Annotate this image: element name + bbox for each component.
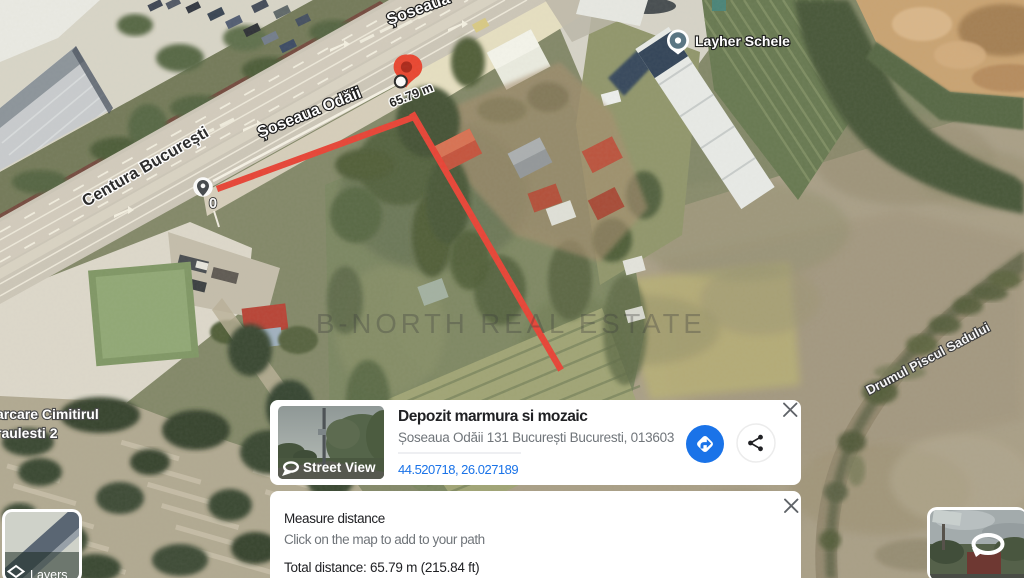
svg-text:Șoseaua Odăii 131 București Bu: Șoseaua Odăii 131 București Bucuresti, 0…: [398, 430, 674, 445]
svg-text:B-NORTH REAL ESTATE: B-NORTH REAL ESTATE: [316, 308, 706, 339]
svg-text:Measure distance: Measure distance: [284, 511, 385, 526]
svg-text:44.520718, 26.027189: 44.520718, 26.027189: [398, 462, 518, 477]
svg-text:Layers: Layers: [30, 568, 68, 578]
svg-text:arcare Cimitirul: arcare Cimitirul: [0, 406, 99, 422]
svg-text:Click on the map to add to you: Click on the map to add to your path: [284, 532, 485, 547]
svg-text:Depozit marmura si mozaic: Depozit marmura si mozaic: [398, 408, 588, 425]
svg-text:raulesti 2: raulesti 2: [0, 425, 58, 441]
svg-text:Total distance: 65.79 m (215.8: Total distance: 65.79 m (215.84 ft): [284, 560, 479, 575]
svg-text:Layher Schele: Layher Schele: [695, 33, 790, 49]
svg-text:Street View: Street View: [303, 460, 376, 475]
